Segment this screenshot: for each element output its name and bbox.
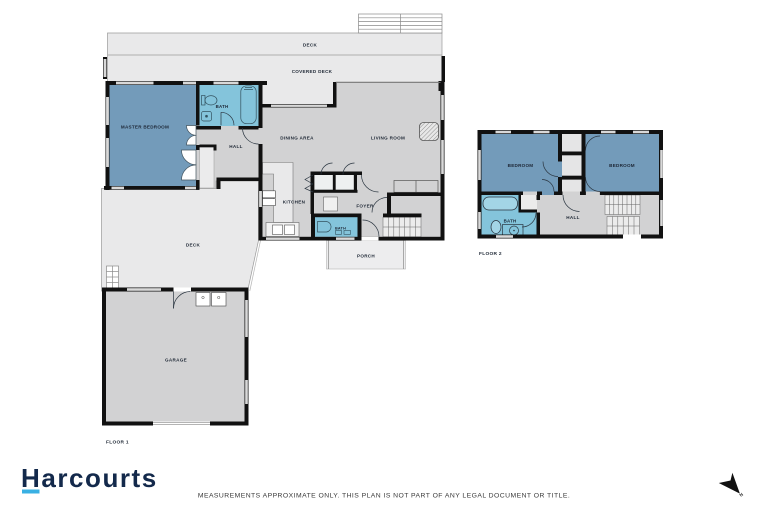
svg-text:DECK: DECK [303, 43, 318, 48]
svg-text:MEASUREMENTS APPROXIMATE ONLY.: MEASUREMENTS APPROXIMATE ONLY. THIS PLAN… [198, 493, 570, 500]
svg-text:COVERED DECK: COVERED DECK [292, 69, 333, 74]
svg-text:HALL: HALL [566, 215, 579, 220]
svg-text:BATH: BATH [504, 219, 517, 224]
svg-text:BEDROOM: BEDROOM [609, 163, 635, 168]
svg-text:KITCHEN: KITCHEN [283, 200, 306, 205]
svg-text:BATH: BATH [216, 104, 229, 109]
svg-text:LIVING ROOM: LIVING ROOM [371, 136, 405, 141]
svg-text:DECK: DECK [186, 243, 201, 248]
svg-text:PORCH: PORCH [357, 254, 375, 259]
svg-text:BEDROOM: BEDROOM [508, 163, 534, 168]
svg-text:BATH: BATH [335, 227, 346, 231]
svg-text:MASTER BEDROOM: MASTER BEDROOM [121, 125, 169, 130]
svg-text:FLOOR 1: FLOOR 1 [106, 440, 129, 446]
svg-text:HALL: HALL [229, 144, 242, 149]
svg-text:Harcourts: Harcourts [21, 463, 158, 493]
svg-text:GARAGE: GARAGE [165, 358, 187, 363]
svg-text:N: N [738, 492, 744, 498]
svg-text:FOYER: FOYER [356, 204, 374, 209]
svg-text:FLOOR 2: FLOOR 2 [479, 251, 502, 257]
svg-text:DINING AREA: DINING AREA [280, 136, 314, 141]
